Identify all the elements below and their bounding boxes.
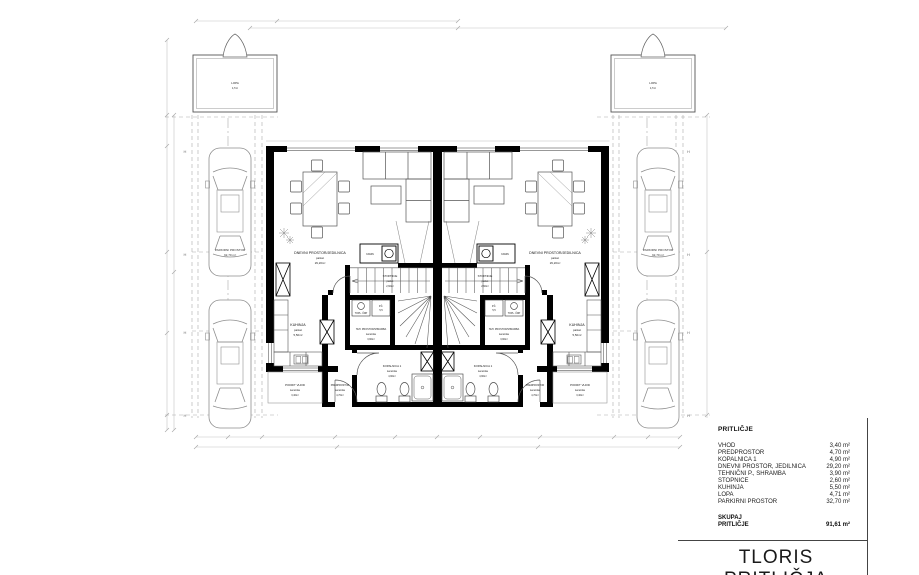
section-marker: H xyxy=(687,252,690,257)
section-marker: H xyxy=(184,252,187,257)
room-area: 29,20 m² xyxy=(826,464,850,471)
shed-right xyxy=(611,34,695,112)
svg-text:PARKIRNI PROSTOR: PARKIRNI PROSTOR xyxy=(215,248,246,252)
svg-text:3,90m²: 3,90m² xyxy=(500,338,508,341)
total-label: SKUPAJ xyxy=(718,515,850,522)
room-name: DNEVNI PROSTOR, JEDILNICA xyxy=(718,464,806,471)
svg-text:5,50m²: 5,50m² xyxy=(573,333,582,337)
room-area: 32,70 m² xyxy=(826,499,850,506)
legend-row: STOPNICE 2,60 m² xyxy=(718,478,850,485)
room-name: TEHNIČNI P., SHRAMBA xyxy=(718,471,786,478)
svg-text:TOPL. ČRP: TOPL. ČRP xyxy=(508,312,521,315)
room-labels-left: DNEVNI PROSTOR/JEDILNICA parket 29,20m² … xyxy=(285,251,402,397)
sheet-title: TLORIS PRITLIČJA xyxy=(686,547,866,575)
svg-text:parket: parket xyxy=(316,256,324,260)
room-area: 5,50 m² xyxy=(830,485,850,492)
svg-text:keramika: keramika xyxy=(499,333,509,336)
svg-text:parket: parket xyxy=(387,280,394,283)
legend-row: KUHINJA 5,50 m² xyxy=(718,485,850,492)
legend-total: SKUPAJ PRITLIČJE 91,61 m² xyxy=(718,515,850,529)
legend-row: PARKIRNI PROSTOR 32,70 m² xyxy=(718,499,850,506)
svg-text:DNEVNI PROSTOR/JEDILNICA: DNEVNI PROSTOR/JEDILNICA xyxy=(529,251,581,255)
svg-text:keramika: keramika xyxy=(575,389,585,392)
left-unit xyxy=(266,146,438,407)
svg-text:parket: parket xyxy=(573,328,581,332)
svg-text:P.Č.: P.Č. xyxy=(379,305,384,308)
svg-text:4,70m²: 4,70m² xyxy=(531,394,539,397)
room-labels-right: DNEVNI PROSTOR/JEDILNICA parket 29,20m² … xyxy=(474,251,590,397)
svg-text:STOPNICE: STOPNICE xyxy=(478,274,493,278)
svg-text:2,60m²: 2,60m² xyxy=(386,285,394,288)
svg-text:keramika: keramika xyxy=(366,333,376,336)
svg-text:TEH. PROSTOR/SHRAMBA: TEH. PROSTOR/SHRAMBA xyxy=(489,328,520,331)
svg-text:keramika: keramika xyxy=(478,370,488,373)
room-area: 2,60 m² xyxy=(830,478,850,485)
svg-text:KAMIN: KAMIN xyxy=(501,253,509,256)
svg-text:32,70 m²: 32,70 m² xyxy=(652,253,664,257)
section-marker: H xyxy=(687,149,690,154)
legend-row: VHOD 3,40 m² xyxy=(718,443,850,450)
room-name: LOPA xyxy=(718,492,734,499)
legend-row: TEHNIČNI P., SHRAMBA 3,90 m² xyxy=(718,471,850,478)
svg-text:KUHINJA: KUHINJA xyxy=(290,323,306,327)
svg-text:POKRIT VHOD: POKRIT VHOD xyxy=(285,383,305,387)
room-area: 3,90 m² xyxy=(830,471,850,478)
room-name: STOPNICE xyxy=(718,478,749,485)
svg-text:POKRIT VHOD: POKRIT VHOD xyxy=(570,383,590,387)
section-marker: H xyxy=(687,330,690,335)
svg-text:PREDPROSTOR: PREDPROSTOR xyxy=(526,384,545,387)
svg-text:PREDPROSTOR: PREDPROSTOR xyxy=(331,384,350,387)
svg-text:parket: parket xyxy=(551,256,559,260)
shed-left xyxy=(193,34,277,112)
parking-right: PARKIRNI PROSTOR 32,70 m² H H H H xyxy=(597,115,710,428)
svg-text:KOPALNICA 1: KOPALNICA 1 xyxy=(474,364,493,368)
svg-text:keramika: keramika xyxy=(387,370,397,373)
room-area: 4,71 m² xyxy=(830,492,850,499)
room-name: KUHINJA xyxy=(718,485,744,492)
room-name: PARKIRNI PROSTOR xyxy=(718,499,777,506)
area-legend: PRITLIČJE VHOD 3,40 m² PREDPROSTOR 4,70 … xyxy=(718,426,850,529)
legend-row: LOPA 4,71 m² xyxy=(718,492,850,499)
svg-text:3,90m²: 3,90m² xyxy=(367,338,375,341)
svg-text:KAMIN: KAMIN xyxy=(366,253,374,256)
room-name: KOPALNICA 1 xyxy=(718,457,757,464)
svg-text:keramika: keramika xyxy=(290,389,300,392)
svg-text:29,20m²: 29,20m² xyxy=(315,261,326,265)
parking-left: PARKIRNI PROSTOR 32,70 m² H H H H xyxy=(165,115,278,428)
svg-text:5,50m²: 5,50m² xyxy=(294,333,303,337)
total-label-2: PRITLIČJE xyxy=(718,522,749,529)
svg-text:3,40m²: 3,40m² xyxy=(576,394,584,397)
room-area: 4,70 m² xyxy=(830,450,850,457)
svg-text:32,70 m²: 32,70 m² xyxy=(224,253,236,257)
titleblock-divider xyxy=(678,540,868,541)
svg-text:4,90m²: 4,90m² xyxy=(388,375,396,378)
svg-text:P.Č.: P.Č. xyxy=(492,305,497,308)
room-name: PREDPROSTOR xyxy=(718,450,764,457)
svg-text:4,90m²: 4,90m² xyxy=(479,375,487,378)
section-marker: H xyxy=(184,413,187,418)
svg-text:4,70m²: 4,70m² xyxy=(336,394,344,397)
svg-text:KOPALNICA 1: KOPALNICA 1 xyxy=(383,364,402,368)
titleblock-border xyxy=(867,418,868,575)
svg-text:KUHINJA: KUHINJA xyxy=(569,323,585,327)
svg-text:29,20m²: 29,20m² xyxy=(550,261,561,265)
room-area: 4,90 m² xyxy=(830,457,850,464)
legend-heading: PRITLIČJE xyxy=(718,426,850,433)
svg-text:STOPNICE: STOPNICE xyxy=(383,274,398,278)
svg-text:PARKIRNI PROSTOR: PARKIRNI PROSTOR xyxy=(643,248,674,252)
room-name: VHOD xyxy=(718,443,735,450)
svg-text:parket: parket xyxy=(482,280,489,283)
svg-text:3,40m²: 3,40m² xyxy=(291,394,299,397)
section-marker: H xyxy=(184,330,187,335)
floor-plan-sheet: LOPA 4,7m² xyxy=(0,0,919,575)
svg-text:keramika: keramika xyxy=(335,389,345,392)
svg-text:parket: parket xyxy=(294,328,302,332)
svg-text:2,60m²: 2,60m² xyxy=(481,285,489,288)
right-unit xyxy=(438,146,610,407)
legend-row: DNEVNI PROSTOR, JEDILNICA 29,20 m² xyxy=(718,464,850,471)
svg-text:DNEVNI PROSTOR/JEDILNICA: DNEVNI PROSTOR/JEDILNICA xyxy=(294,251,346,255)
svg-text:keramika: keramika xyxy=(530,389,540,392)
room-area: 3,40 m² xyxy=(830,443,850,450)
svg-text:TOPL. ČRP: TOPL. ČRP xyxy=(355,312,368,315)
svg-text:TEH. PROSTOR/SHRAMBA: TEH. PROSTOR/SHRAMBA xyxy=(356,328,387,331)
legend-row: KOPALNICA 1 4,90 m² xyxy=(718,457,850,464)
section-marker: H xyxy=(687,413,690,418)
legend-row: PREDPROSTOR 4,70 m² xyxy=(718,450,850,457)
section-marker: H xyxy=(184,149,187,154)
total-value: 91,61 m² xyxy=(826,522,850,529)
